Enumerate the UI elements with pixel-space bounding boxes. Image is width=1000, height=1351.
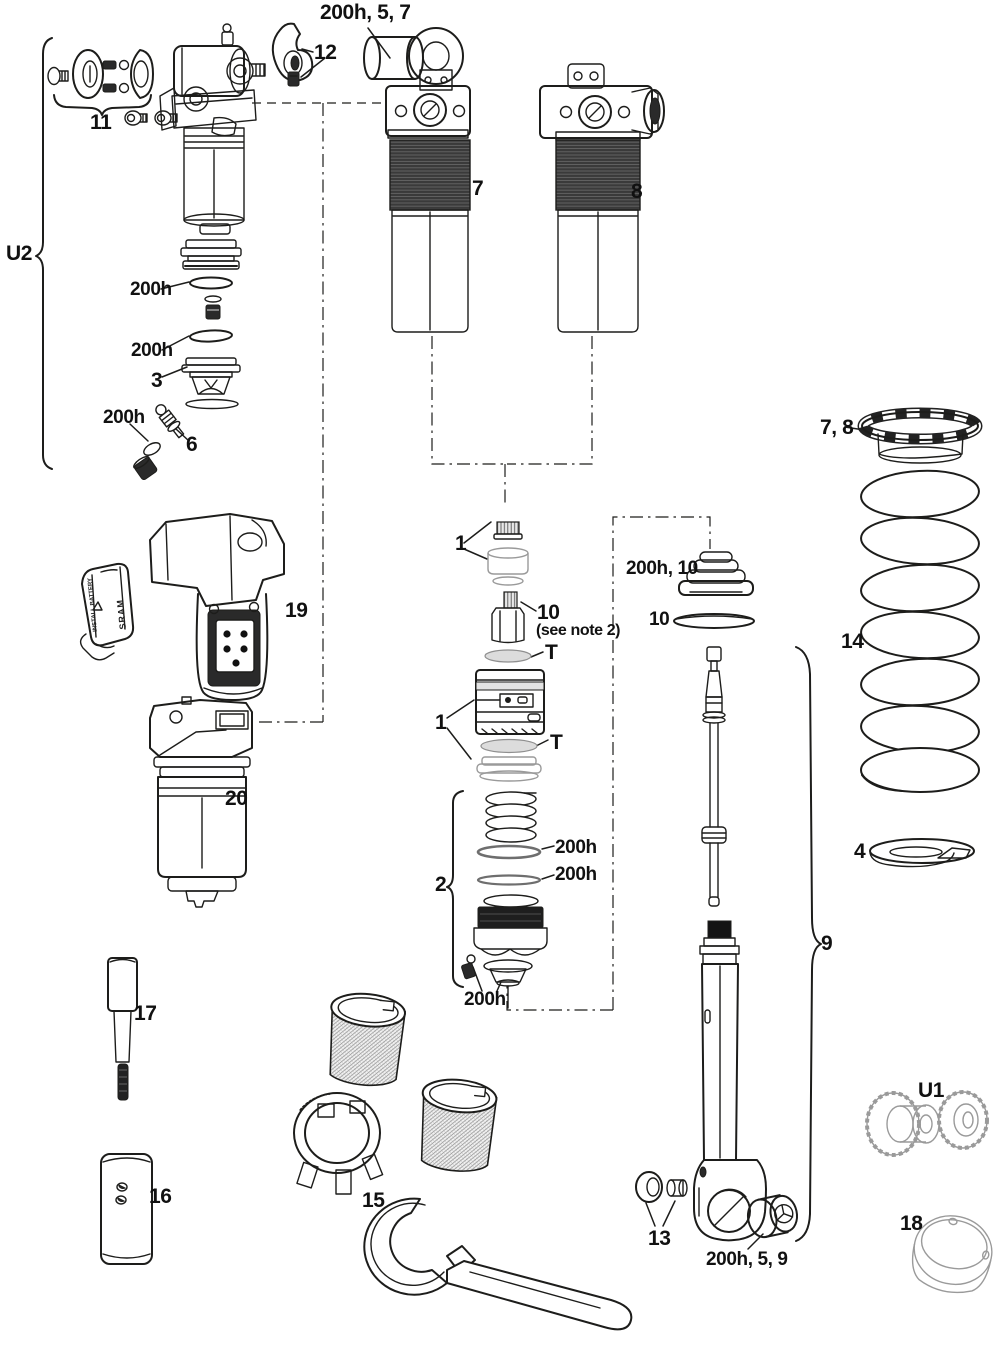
label-14: 14: [841, 631, 864, 652]
label-200h-d: 200h: [555, 838, 597, 857]
diagram-line-art: .s{stroke:#1d1d1b;fill:none;stroke-width…: [0, 0, 1000, 1351]
tool-set-15: [294, 990, 631, 1329]
seal-gland-gray: [477, 757, 541, 781]
label-19: 19: [285, 600, 308, 621]
label-u1: U1: [918, 1080, 944, 1101]
u2-brace: [36, 38, 52, 469]
label-u2: U2: [6, 243, 32, 264]
label-13: 13: [648, 1228, 671, 1249]
oring-200h: [190, 329, 233, 342]
label-t-lower: T: [550, 732, 562, 753]
knurled-sleeve-b: [415, 1076, 498, 1174]
label-10b: 10: [649, 610, 669, 629]
label-2: 2: [435, 874, 446, 895]
valve-nut-200h: [132, 454, 158, 480]
tool-sleeve-16: [101, 1154, 152, 1264]
label-200h-5-7: 200h, 5, 7: [320, 2, 411, 23]
label-12: 12: [314, 42, 337, 63]
piston-head: [474, 895, 547, 955]
oring-200h: [478, 876, 540, 885]
label-20: 20: [225, 788, 248, 809]
detent-ball: [467, 955, 475, 963]
exploded-diagram-canvas: .s{stroke:#1d1d1b;fill:none;stroke-width…: [0, 0, 1000, 1351]
label-1b: 1: [435, 712, 446, 733]
valve-cap-3: [182, 358, 240, 394]
shock-body-7: [386, 28, 470, 332]
label-200h-f: 200h: [464, 990, 506, 1009]
label-8: 8: [631, 181, 642, 202]
label-6: 6: [186, 434, 197, 455]
piston-assembly-2: [461, 792, 547, 1008]
label-7-8: 7, 8: [820, 417, 853, 438]
damper-body: [694, 921, 766, 1240]
label-16: 16: [149, 1186, 172, 1207]
mounting-nut-13: [636, 1172, 687, 1202]
label-3: 3: [151, 370, 162, 391]
washer-10: [674, 614, 754, 628]
label-7: 7: [472, 178, 483, 199]
label-200h-b: 200h: [131, 341, 173, 360]
preload-ring: [862, 412, 978, 463]
t-washer-upper: [485, 650, 531, 662]
rebound-spring: [486, 792, 536, 842]
label-200h-c: 200h: [103, 408, 145, 427]
flight-attendant-module-19: [150, 514, 284, 700]
t-washer-lower: [481, 740, 537, 753]
label-200h-e: 200h: [555, 865, 597, 884]
label-15: 15: [362, 1190, 385, 1211]
label-1a: 1: [455, 533, 466, 554]
shock-body-8: [540, 64, 664, 332]
adjuster-10: [492, 592, 524, 643]
damper-topcap-stack: [476, 522, 544, 781]
label-11: 11: [90, 112, 111, 133]
label-t-upper: T: [545, 642, 557, 663]
crown-ring: [294, 1093, 383, 1194]
ifp-cap-gray: [488, 548, 528, 585]
label-200h-5-9: 200h, 5, 9: [706, 1250, 788, 1269]
bolt: [125, 111, 147, 125]
remote-lever-12: [273, 24, 312, 86]
label-10a: 10: [537, 602, 560, 623]
damper-shaft: [702, 647, 726, 906]
coil-spring-14: [860, 468, 980, 792]
oring-200h: [478, 846, 540, 858]
label-200h-a: 200h: [130, 280, 172, 299]
label-4: 4: [854, 841, 865, 862]
eyelet-bushing: [745, 1192, 801, 1239]
label-see-note-2: (see note 2): [536, 623, 620, 639]
spacer-13: [667, 1180, 687, 1196]
brace-2: [447, 791, 463, 987]
label-200h-10: 200h, 10: [626, 559, 698, 578]
motor-assembly: [160, 24, 265, 234]
label-18: 18: [900, 1213, 923, 1234]
shock-wrench: [364, 1199, 631, 1330]
brace-9: [796, 647, 821, 1241]
washer-200h: [142, 440, 163, 458]
spring-retainer-4: [870, 839, 974, 867]
knurled-sleeve-a: [324, 990, 407, 1088]
oring-200h: [190, 278, 232, 289]
mounting-hardware-11: [48, 50, 177, 125]
canister-1: [476, 670, 544, 734]
tool-pin-17: [108, 958, 137, 1100]
set-screw-200h: [461, 962, 476, 979]
label-17: 17: [134, 1003, 157, 1024]
label-9: 9: [821, 933, 832, 954]
